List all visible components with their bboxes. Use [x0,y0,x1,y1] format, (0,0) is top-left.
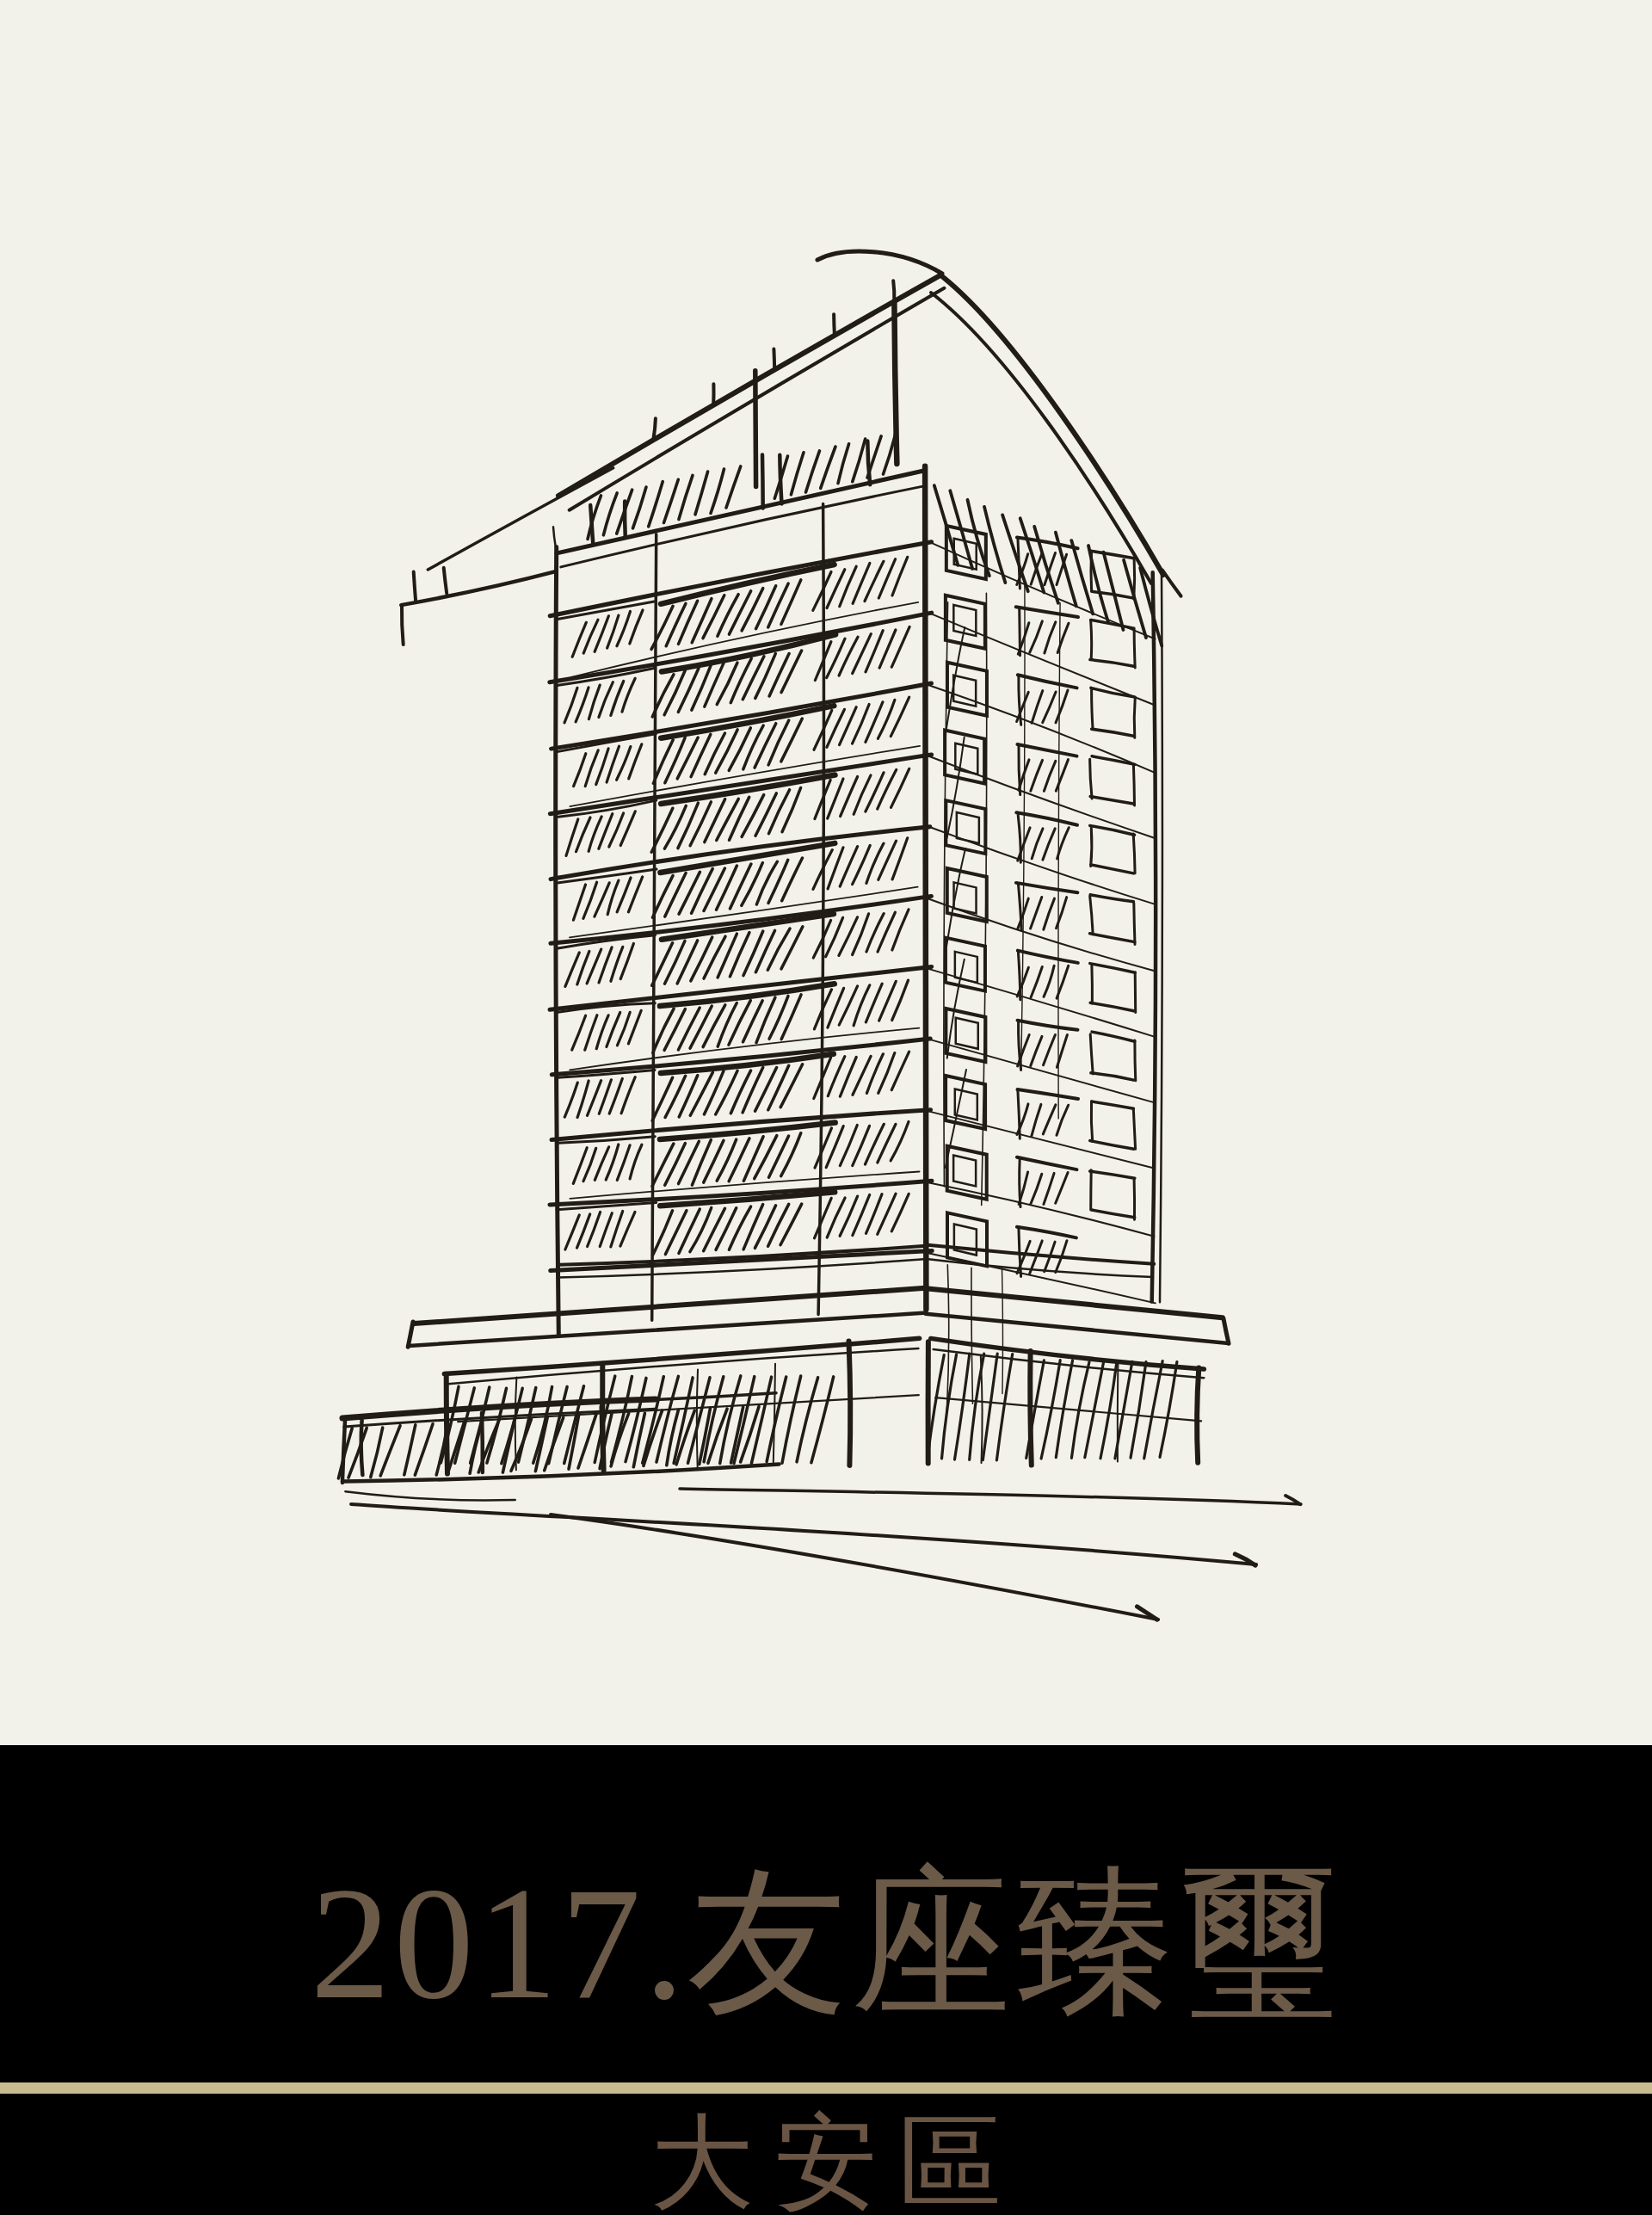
building-sketch [0,0,1652,1745]
footer-panel: 2017.友座臻璽 大安區 [0,1745,1652,2215]
left-face-balconies [550,542,933,1271]
building-sketch-svg [0,0,1652,1745]
right-face-windows [927,526,1156,1303]
project-title: 2017.友座臻璽 [0,1857,1652,2029]
poster-page: { "page": { "width": 1920, "height": 257… [0,0,1652,2215]
divider-line [0,2082,1652,2094]
street-lines [345,1489,1301,1620]
roof-crown [401,251,1180,646]
district-label: 大安區 [0,2108,1652,2215]
